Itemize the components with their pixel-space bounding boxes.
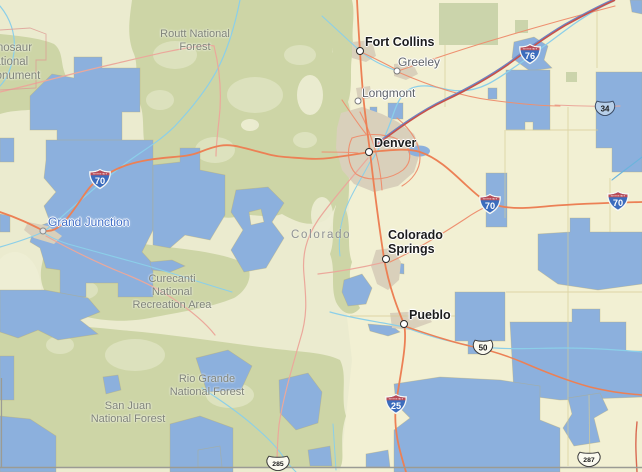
us-287-shield: 287 [576,450,602,468]
svg-text:285: 285 [272,461,284,468]
area-label-routt-national-forest: Routt National Forest [150,28,240,54]
svg-text:287: 287 [583,457,595,464]
area-label-dinosaur-national-monument: Dinosaur National Monument [0,42,56,83]
city-label-pueblo: Pueblo [409,309,451,322]
us-285-shield: 285 [265,454,291,472]
svg-text:70: 70 [95,176,105,186]
svg-text:34: 34 [601,104,610,113]
svg-text:70: 70 [485,201,495,211]
us-34-shield: 34 [594,99,616,117]
interstate-76-shield: INTERSTATE 76 [518,43,542,65]
city-label-colorado-springs: Colorado Springs [388,229,448,256]
area-label-curecanti-national-recreation-area: Curecanti National Recreation Area [120,273,224,313]
svg-text:25: 25 [391,401,401,411]
svg-text:50: 50 [479,343,488,352]
interstate-70-shield-east: INTERSTATE 70 [606,190,630,212]
city-marker-longmont[interactable] [355,98,362,105]
city-marker-pueblo[interactable] [400,320,408,328]
city-marker-colorado-springs[interactable] [382,255,390,263]
city-marker-denver[interactable] [365,148,373,156]
colorado-map[interactable]: Dinosaur National Monument Routt Nationa… [0,0,642,472]
area-label-rio-grande-national-forest: Rio Grande National Forest [157,373,257,399]
city-marker-grand-junction[interactable] [40,228,47,235]
svg-text:76: 76 [525,51,535,61]
city-label-longmont: Longmont [362,87,415,100]
city-label-denver: Denver [374,137,416,150]
area-label-san-juan-national-forest: San Juan National Forest [78,400,178,426]
city-label-grand-junction: Grand Junction [48,216,129,229]
interstate-25-shield: INTERSTATE 25 [384,393,408,415]
state-label-colorado: Colorado [291,229,351,241]
svg-text:70: 70 [613,198,623,208]
city-label-fort-collins: Fort Collins [365,36,434,49]
interstate-70-shield-west: INTERSTATE 70 [88,168,112,190]
city-label-greeley: Greeley [398,56,440,69]
us-50-shield: 50 [472,338,494,356]
city-marker-fort-collins[interactable] [356,47,364,55]
interstate-70-shield-east-central: INTERSTATE 70 [478,193,502,215]
